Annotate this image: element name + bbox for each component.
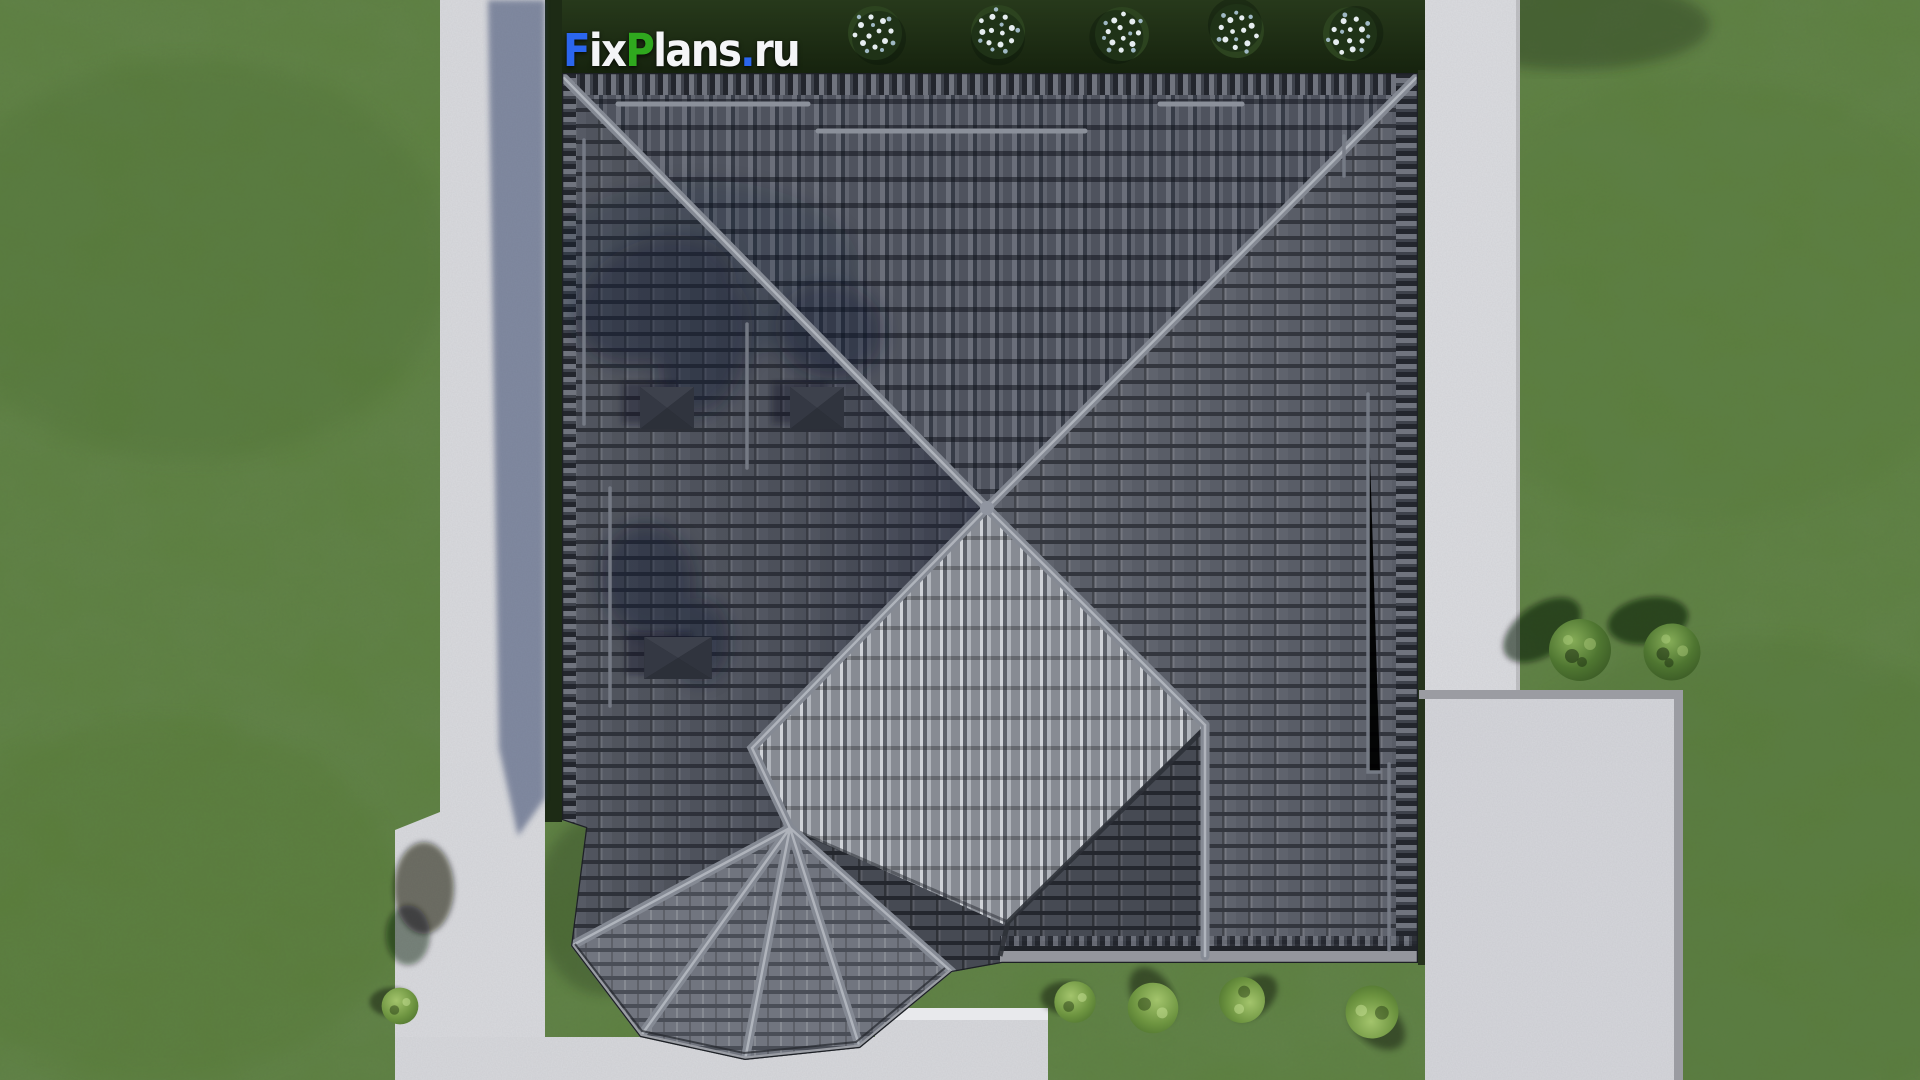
house-roof xyxy=(540,73,1418,1060)
watermark-logo: FixPlans.ru xyxy=(563,24,799,77)
eave-band-left xyxy=(562,73,576,822)
logo-letter-p: P xyxy=(625,24,653,77)
roof-plan-render xyxy=(0,0,1920,1080)
logo-letter-f: F xyxy=(563,24,589,77)
eave-band-right xyxy=(1396,73,1418,963)
logo-letters-lans: lans xyxy=(653,24,740,77)
patio-curb-top xyxy=(1419,690,1683,699)
skylight xyxy=(644,637,712,679)
logo-letter-x: x xyxy=(601,24,625,77)
patio-curb-right xyxy=(1674,690,1683,1080)
logo-letters-ru: ru xyxy=(754,24,799,77)
skylight xyxy=(640,387,694,429)
logo-dot: . xyxy=(740,24,754,77)
scene-viewport: FixPlans.ru xyxy=(0,0,1920,1080)
ridge-junction xyxy=(980,501,994,515)
west-shadow-strip xyxy=(545,0,562,822)
logo-letter-i: i xyxy=(589,24,601,77)
skylight xyxy=(790,387,844,429)
